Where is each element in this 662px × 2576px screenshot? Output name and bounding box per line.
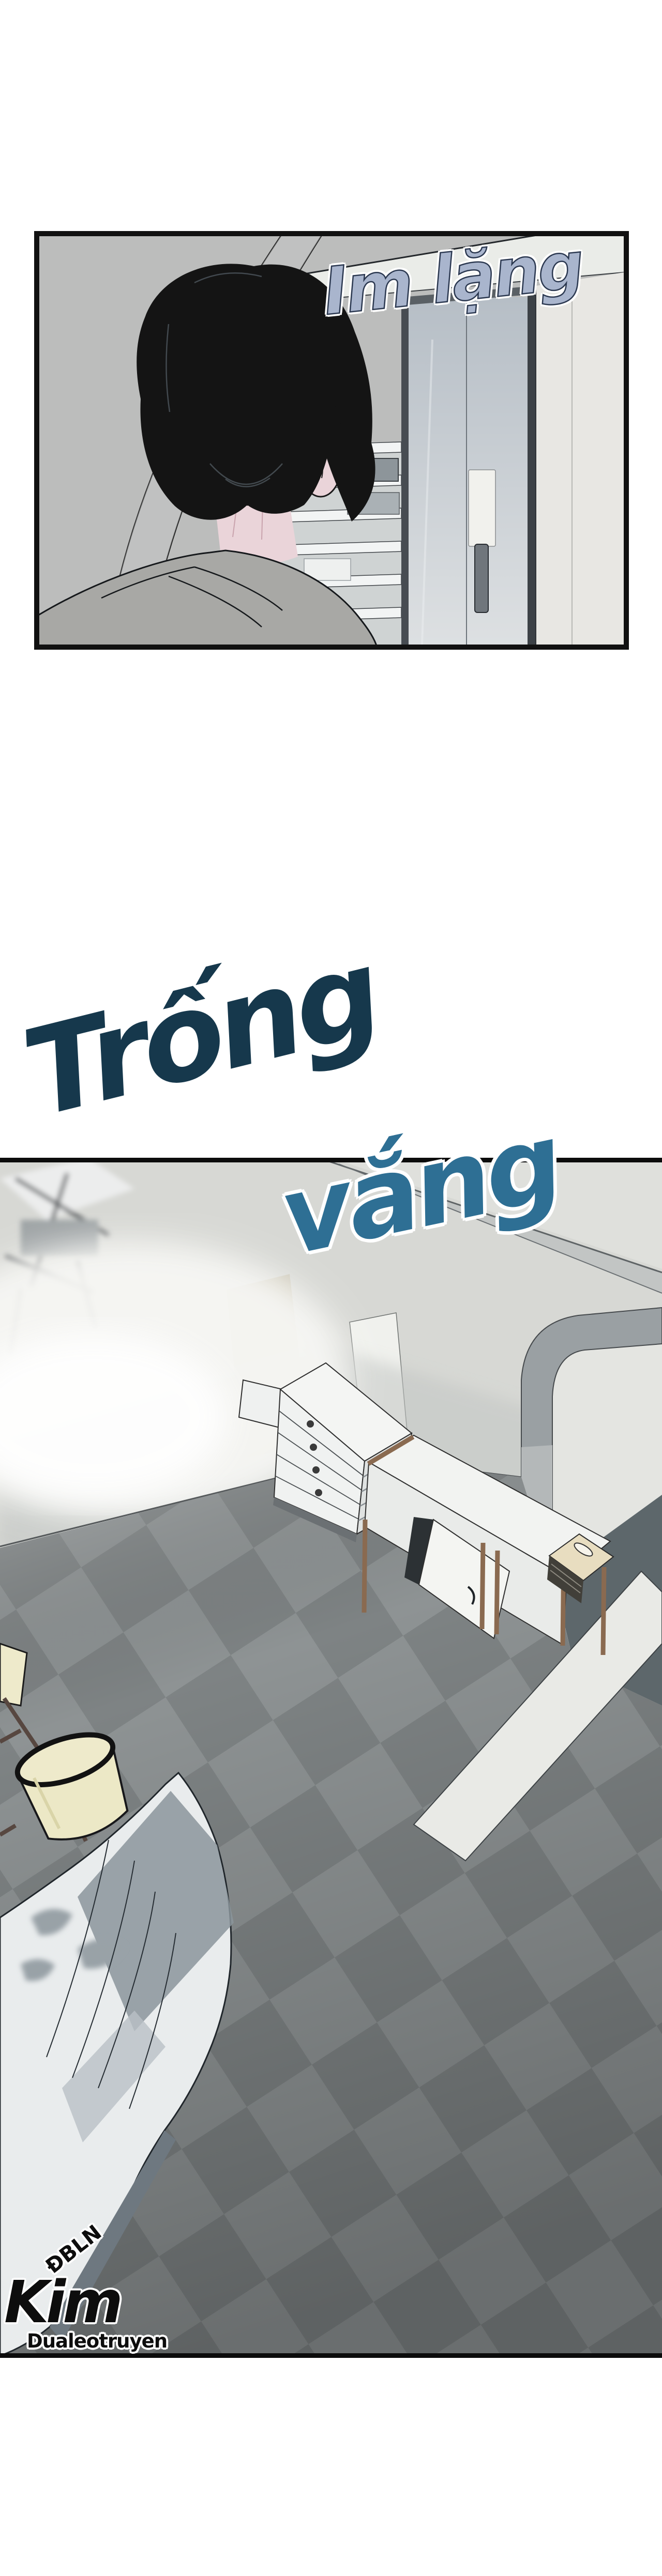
panel-bedroom (0, 1158, 662, 2358)
glass-door (401, 286, 536, 645)
switch-plate (469, 470, 495, 546)
watermark: ĐBLN Kim Dualeotruyen (3, 2258, 138, 2366)
door-handle (475, 544, 488, 612)
watermark-group: Dualeotruyen (27, 2330, 167, 2352)
comic-page: Im lặng (0, 0, 662, 2576)
side-wall (536, 272, 624, 645)
title-word-trong: Trống (11, 923, 390, 1144)
watermark-artist: Kim (4, 2269, 120, 2336)
bedroom-scene (0, 1158, 662, 2358)
